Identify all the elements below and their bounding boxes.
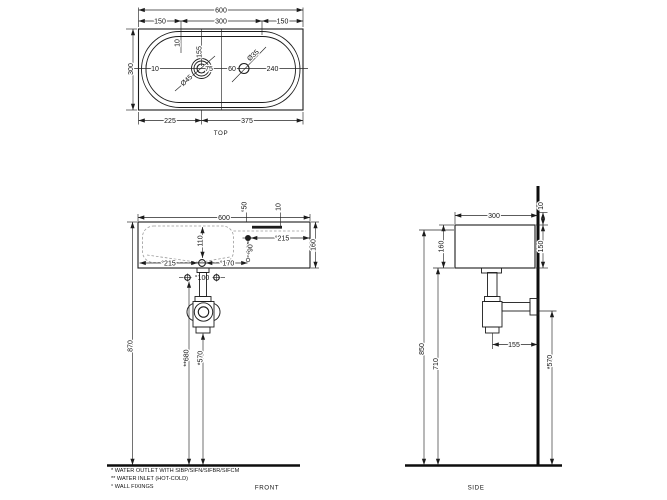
water-inlet-right [213,274,226,282]
dim-side-fix-height: 150 [538,241,545,253]
dim-top-60: 60 [228,66,236,73]
front-view: 600 °50 10 °215 °90 110 160 °215 °170 [107,202,319,492]
dim-side-height: 160 [439,241,446,253]
dim-top-rim: 10 [151,66,159,73]
bottle-trap-side [482,268,539,333]
dim-front-width: 600 [218,215,230,222]
dim-front-10: 10 [276,203,283,211]
dim-side-10: 10 [538,202,545,210]
view-label-top: TOP [214,130,228,137]
dim-top-seg-right: 150 [277,19,289,26]
dim-side-outlet-height: *570 [547,355,554,370]
dim-front-inlet-span: °100 [195,274,210,282]
dim-front-outlet-height: *570 [198,351,205,366]
dim-top-offset-rear: 10 [175,39,182,47]
dim-top-240: 240 [267,66,279,73]
dim-tap-diameter: Ø35 [246,49,261,63]
front-bowl-hidden-line [143,226,234,263]
water-inlet-left [179,274,192,282]
dim-top-drain-to-right: 375 [241,118,253,125]
view-label-front: FRONT [255,485,279,492]
footnote-water-outlet: * WATER OUTLET WITH SIBP/SIFN/SIFBR/SIFC… [111,468,240,474]
fixing-mark [246,258,250,262]
dim-front-fix-drop: °90 [247,244,255,255]
dim-side-depth: 300 [488,213,500,220]
footnote-wall-fixings: ° WALL FIXINGS [111,484,154,490]
front-rear-slot [252,226,282,229]
dim-front-height: 160 [311,239,318,251]
top-view: 600 150 300 150 10 155 300 10 75 60 240 … [126,8,308,138]
footnote-water-inlet: ** WATER INLET (HOT-COLD) [111,476,188,482]
dim-front-inlet-height: **680 [184,349,191,366]
sink-technical-drawing: 600 150 300 150 10 155 300 10 75 60 240 … [0,0,667,500]
dim-top-75: 75 [205,66,213,73]
dim-top-depth: 300 [128,63,135,75]
dim-front-170: °170 [220,260,235,268]
dim-front-total-height: 870 [128,340,135,352]
footnotes: * WATER OUTLET WITH SIBP/SIFN/SIFBR/SIFC… [111,468,240,490]
view-label-side: SIDE [468,485,485,492]
dim-front-bowl-depth: 110 [198,235,205,246]
dim-front-fix-right: °215 [275,234,290,242]
side-view: 300 10 150 160 850 710 155 *570 SIDE [405,186,562,492]
dim-side-back-height: 850 [419,343,426,355]
dim-front-fix-top: °50 [241,202,249,213]
dim-side-outlet-offset: 155 [508,342,520,349]
tap-leader-line [232,47,266,82]
front-bowl-slope-hidden-line [147,255,230,263]
dim-front-fix-left: °215 [161,260,176,268]
outlet-pipe [502,303,530,312]
dim-side-under-height: 710 [433,358,440,370]
dim-top-seg-left: 150 [154,19,166,26]
dim-top-seg-mid: 300 [215,19,227,26]
dim-top-drain-from-left: 225 [164,118,176,125]
side-basin-outline [455,225,535,268]
dim-top-width: 600 [215,8,227,15]
dim-top-drain-to-rear: 155 [197,46,204,58]
drawing-canvas: 600 150 300 150 10 155 300 10 75 60 240 … [0,0,667,500]
